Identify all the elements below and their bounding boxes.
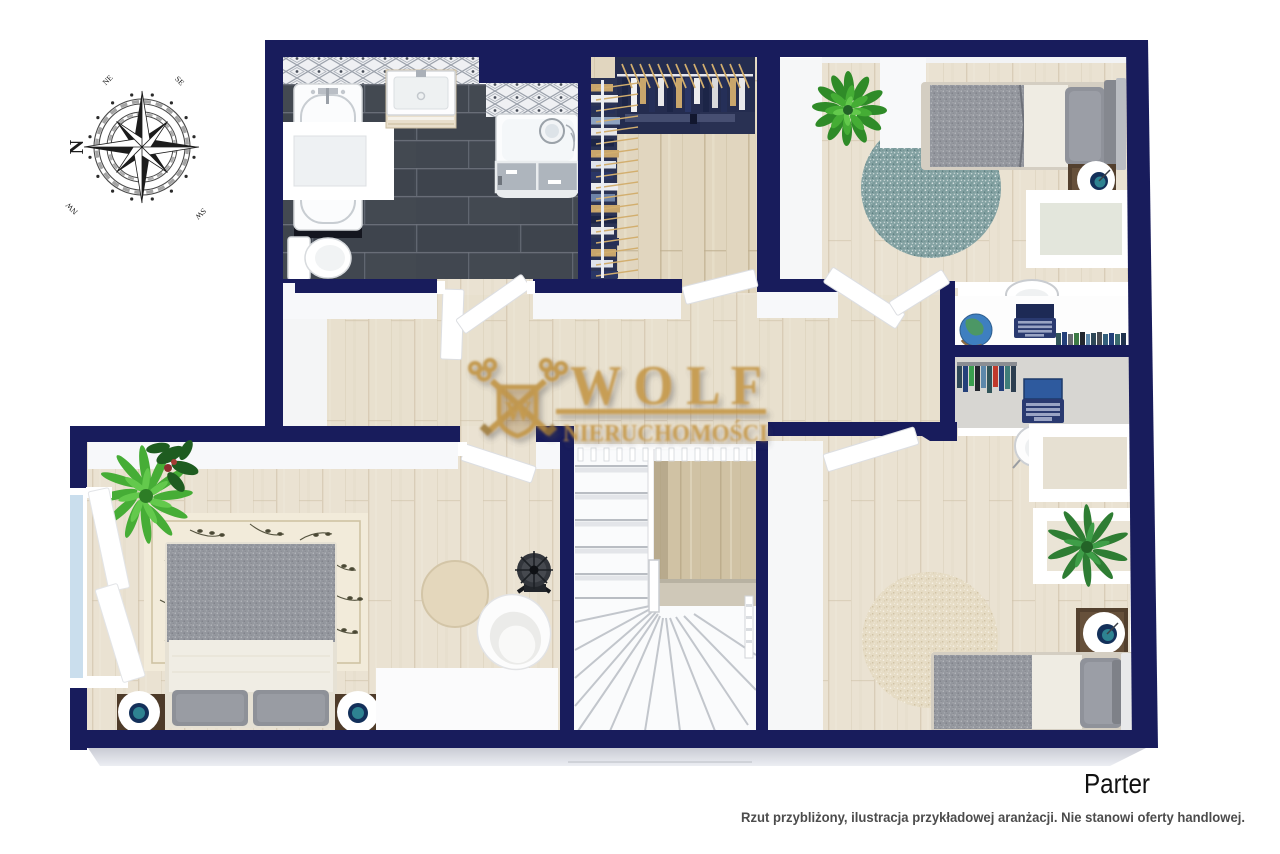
svg-text:NIERUCHOMOŚCI: NIERUCHOMOŚCI — [563, 420, 768, 447]
svg-text:Parter: Parter — [1084, 768, 1150, 799]
svg-text:W O L F: W O L F — [570, 355, 762, 417]
svg-text:Rzut przybliżony, ilustracja p: Rzut przybliżony, ilustracja przykładowe… — [741, 810, 1245, 825]
svg-text:N: N — [66, 139, 88, 154]
svg-text:W: W — [505, 396, 532, 426]
